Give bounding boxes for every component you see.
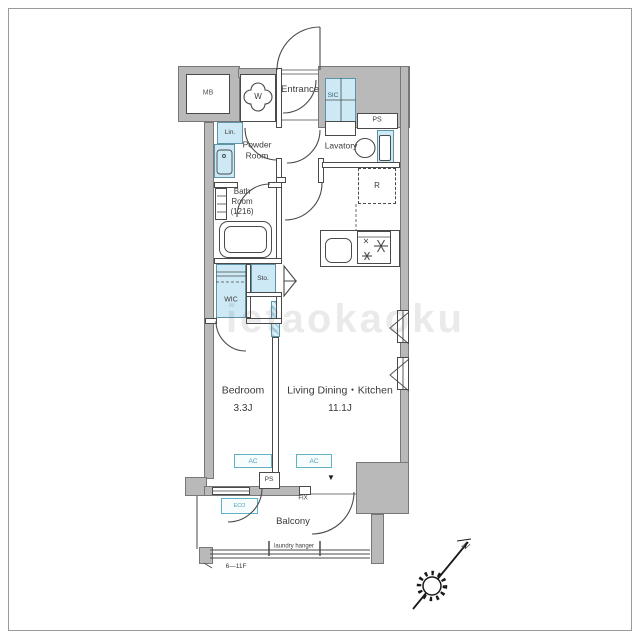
pipe-space-bottom-label: PS <box>265 476 274 484</box>
ac-unit-bedroom: AC <box>234 454 272 468</box>
wall-segment <box>268 182 282 188</box>
powder-room-label: Powder Room <box>243 139 272 160</box>
casement-window-2 <box>397 357 409 390</box>
linen-label: Lin. <box>225 129 235 137</box>
water-heater: ECO <box>221 498 258 514</box>
fix-window <box>299 486 311 495</box>
lavatory-label: Lavatory <box>325 141 358 152</box>
meter-box-label: MB <box>203 90 214 99</box>
shoe-closet-lower <box>325 121 356 136</box>
gas-stove <box>357 231 391 264</box>
wall-corner-bottom-right <box>356 462 409 514</box>
door-direction-marker: ▼ <box>327 473 335 483</box>
bedroom-size-label: 3.3J <box>234 403 253 416</box>
storage-label: Sto. <box>257 275 269 283</box>
kitchen-sink <box>325 238 352 263</box>
fridge-label: R <box>374 181 380 191</box>
fix-label: FIX <box>298 495 307 503</box>
bedroom-window <box>212 487 250 495</box>
laundry-hanger-label: laundry hanger <box>274 543 314 551</box>
wall-bedroom-ldk-partition <box>272 337 279 477</box>
ac-unit-ldk: AC <box>296 454 332 468</box>
balcony-label: Balcony <box>276 516 310 528</box>
ldk-label: Living Dining・Kitchen <box>287 384 393 397</box>
bathtub-inner <box>224 226 267 253</box>
toilet-tank <box>379 135 391 161</box>
ac-label: AC <box>248 458 257 465</box>
ac-label: AC <box>309 458 318 465</box>
bedroom-label: Bedroom <box>222 384 265 397</box>
bath-counter <box>215 188 227 220</box>
wall-segment <box>276 158 282 264</box>
water-heater-label: ECO <box>234 503 246 509</box>
wall-segment <box>276 68 282 128</box>
balcony-post <box>199 547 213 564</box>
bath-room-label: Bath Room (1216) <box>230 187 253 217</box>
wall-right <box>400 66 409 463</box>
floor-plan: AC AC ECO <box>0 0 640 639</box>
wall-segment <box>205 318 217 324</box>
wall-balcony-stem <box>371 514 384 564</box>
shoe-closet-label: SIC <box>328 92 339 100</box>
pipe-space-top-label: PS <box>372 117 381 126</box>
wall-left <box>204 122 214 479</box>
entrance-label: Entrance <box>281 84 319 96</box>
ldk-size-label: 11.1J <box>328 403 352 416</box>
floor-range-label: 6—11F <box>226 563 247 571</box>
vanity-sink <box>214 144 235 178</box>
washer-label: W <box>254 92 262 102</box>
watermark: ietaokaoku <box>226 297 465 342</box>
